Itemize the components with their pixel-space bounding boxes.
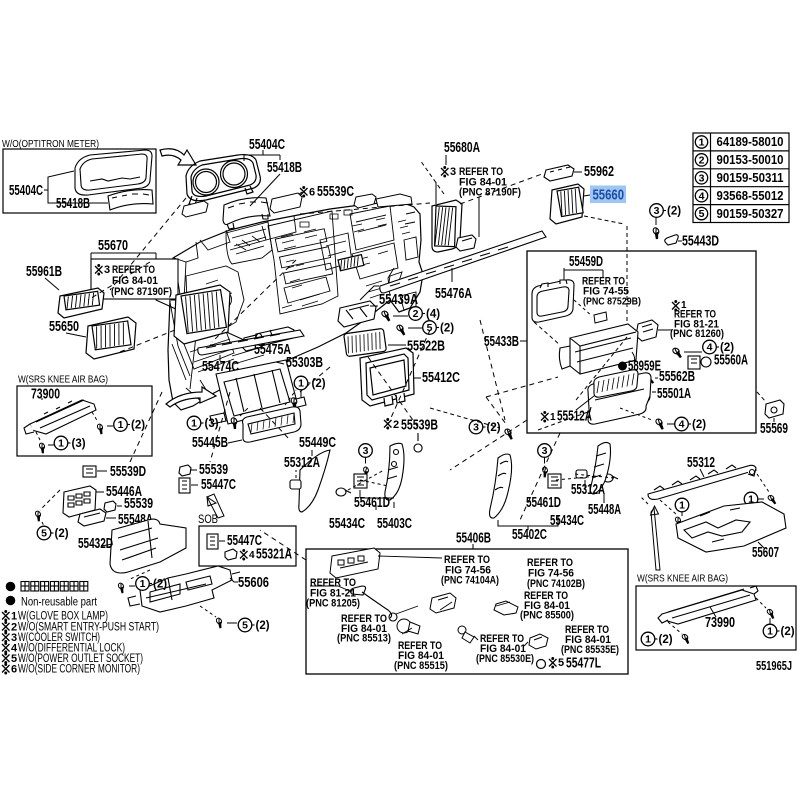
svg-text:3: 3: [473, 422, 479, 434]
svg-text:55539D: 55539D: [110, 464, 146, 480]
svg-text:4: 4: [707, 342, 713, 354]
svg-text:(PNC 81260): (PNC 81260): [670, 328, 724, 340]
svg-text:SOB: SOB: [198, 514, 218, 526]
svg-text:(2): (2): [131, 420, 145, 432]
svg-text:(4): (4): [426, 309, 440, 321]
svg-text:(PNC 74104A): (PNC 74104A): [441, 575, 499, 587]
svg-text:1: 1: [679, 500, 685, 512]
svg-text:55412C: 55412C: [422, 370, 460, 386]
svg-text:(2): (2): [153, 579, 167, 591]
svg-text:(PNC 87190F): (PNC 87190F): [111, 286, 172, 298]
svg-text:1: 1: [140, 578, 146, 590]
svg-text:(2): (2): [659, 634, 673, 646]
svg-text:(PNC 87190F): (PNC 87190F): [459, 187, 521, 199]
svg-text:90159-50327: 90159-50327: [717, 207, 784, 221]
svg-text:55434C: 55434C: [550, 513, 584, 529]
svg-text:90153-50010: 90153-50010: [717, 153, 784, 167]
svg-text:1: 1: [191, 418, 197, 430]
svg-text:(PNC 74102B): (PNC 74102B): [527, 578, 585, 590]
svg-text:(3): (3): [72, 438, 86, 450]
svg-text:1: 1: [645, 634, 651, 646]
svg-text:55650: 55650: [49, 319, 79, 335]
svg-text:55539C: 55539C: [317, 184, 354, 200]
svg-text:3: 3: [542, 445, 548, 457]
svg-text:W/O(SIDE CORNER MONITOR): W/O(SIDE CORNER MONITOR): [18, 664, 140, 676]
svg-text:55606: 55606: [238, 575, 269, 591]
svg-text:55539B: 55539B: [401, 418, 438, 434]
svg-text:1: 1: [767, 626, 773, 638]
svg-text:551965J: 551965J: [756, 659, 792, 673]
svg-text:(2): (2): [312, 378, 326, 390]
svg-text:3: 3: [104, 264, 110, 276]
svg-text:55418B: 55418B: [267, 160, 302, 176]
svg-text:55660: 55660: [593, 188, 625, 204]
svg-text:(2): (2): [55, 528, 69, 540]
svg-text:55607: 55607: [752, 545, 779, 561]
svg-text:1: 1: [550, 412, 556, 423]
svg-text:55962: 55962: [584, 164, 614, 180]
svg-text:55312A: 55312A: [284, 455, 320, 471]
svg-text:55303B: 55303B: [286, 355, 323, 371]
svg-text:(2): (2): [692, 419, 706, 431]
svg-text:55312A: 55312A: [571, 482, 605, 498]
svg-text:2: 2: [413, 308, 419, 320]
svg-text:55961B: 55961B: [26, 264, 62, 280]
svg-text:2: 2: [393, 419, 399, 431]
svg-text:55432D: 55432D: [78, 536, 113, 552]
svg-text:6: 6: [309, 187, 315, 199]
svg-text:(PNC 85500): (PNC 85500): [520, 610, 574, 622]
svg-text:55560A: 55560A: [714, 353, 748, 369]
svg-text:(PNC 85515): (PNC 85515): [394, 660, 448, 672]
svg-text:3: 3: [699, 172, 705, 184]
svg-text:55461D: 55461D: [526, 495, 561, 511]
svg-text:55477L: 55477L: [566, 656, 601, 672]
svg-text:55447C: 55447C: [201, 477, 236, 493]
svg-text:(PNC 85513): (PNC 85513): [337, 633, 391, 645]
svg-text:55461D: 55461D: [354, 495, 390, 511]
svg-text:55459D: 55459D: [569, 254, 603, 270]
svg-text:55443D: 55443D: [682, 234, 719, 250]
svg-text:1: 1: [118, 419, 124, 431]
svg-text:55562B: 55562B: [659, 369, 695, 385]
svg-text:55402C: 55402C: [512, 527, 547, 543]
svg-text:55403C: 55403C: [377, 516, 412, 532]
svg-text:55569: 55569: [760, 421, 788, 437]
svg-text:64189-58010: 64189-58010: [717, 135, 784, 149]
svg-text:4: 4: [679, 419, 685, 431]
svg-text:(2): (2): [440, 323, 454, 335]
svg-text:1: 1: [58, 438, 64, 450]
svg-text:55321A: 55321A: [256, 547, 292, 563]
svg-text:1: 1: [699, 137, 705, 149]
svg-text:55449C: 55449C: [299, 435, 336, 451]
svg-text:55448A: 55448A: [588, 502, 621, 518]
svg-text:55312: 55312: [687, 455, 715, 471]
svg-text:Non-reusable part: Non-reusable part: [21, 597, 98, 609]
svg-text:55404C: 55404C: [249, 137, 285, 153]
svg-text:55680A: 55680A: [444, 140, 480, 156]
svg-text:55445B: 55445B: [192, 435, 228, 451]
svg-text:55434C: 55434C: [329, 516, 365, 532]
svg-text:W/O(OPTITRON METER): W/O(OPTITRON METER): [2, 138, 99, 150]
svg-text:W(SRS KNEE AIR BAG): W(SRS KNEE AIR BAG): [637, 573, 728, 585]
svg-text:55512A: 55512A: [557, 409, 592, 425]
svg-text:(PNC 87529B): (PNC 87529B): [583, 297, 641, 308]
svg-text:3: 3: [363, 445, 369, 457]
svg-text:90159-50311: 90159-50311: [717, 171, 784, 185]
svg-text:3: 3: [450, 166, 456, 178]
svg-text:55501A: 55501A: [657, 386, 691, 402]
svg-text:4: 4: [699, 190, 705, 202]
svg-text:1: 1: [298, 378, 304, 390]
svg-text:5: 5: [41, 528, 47, 540]
svg-text:55670: 55670: [98, 238, 128, 254]
svg-text:55539: 55539: [124, 496, 153, 512]
svg-text:5: 5: [699, 208, 705, 220]
svg-text:(3): (3): [205, 418, 219, 430]
svg-text:(PNC 81205): (PNC 81205): [306, 598, 360, 610]
svg-text:4: 4: [249, 550, 255, 561]
svg-text:6: 6: [11, 664, 17, 676]
svg-text:W(SRS KNEE AIR BAG): W(SRS KNEE AIR BAG): [18, 374, 108, 386]
svg-text:55539: 55539: [199, 462, 228, 478]
svg-text:(PNC 85535E): (PNC 85535E): [561, 644, 619, 656]
svg-text:73990: 73990: [705, 615, 735, 631]
svg-text:55404C: 55404C: [9, 183, 43, 199]
svg-text:5: 5: [427, 322, 433, 334]
svg-text:2: 2: [699, 155, 705, 167]
svg-text:3: 3: [654, 205, 660, 217]
svg-text:55418B: 55418B: [56, 196, 90, 212]
svg-text:55476A: 55476A: [435, 286, 472, 302]
svg-text:(2): (2): [667, 206, 681, 218]
svg-text:55433B: 55433B: [484, 334, 519, 350]
svg-text:93568-55012: 93568-55012: [717, 189, 784, 203]
svg-text:5: 5: [558, 657, 564, 669]
svg-text:(PNC 85530E): (PNC 85530E): [476, 653, 534, 665]
svg-text:(2): (2): [256, 620, 270, 632]
svg-text:55439A: 55439A: [379, 292, 418, 308]
svg-text:(2): (2): [781, 626, 795, 638]
svg-text:5: 5: [242, 620, 248, 632]
svg-text:73900: 73900: [31, 387, 60, 403]
